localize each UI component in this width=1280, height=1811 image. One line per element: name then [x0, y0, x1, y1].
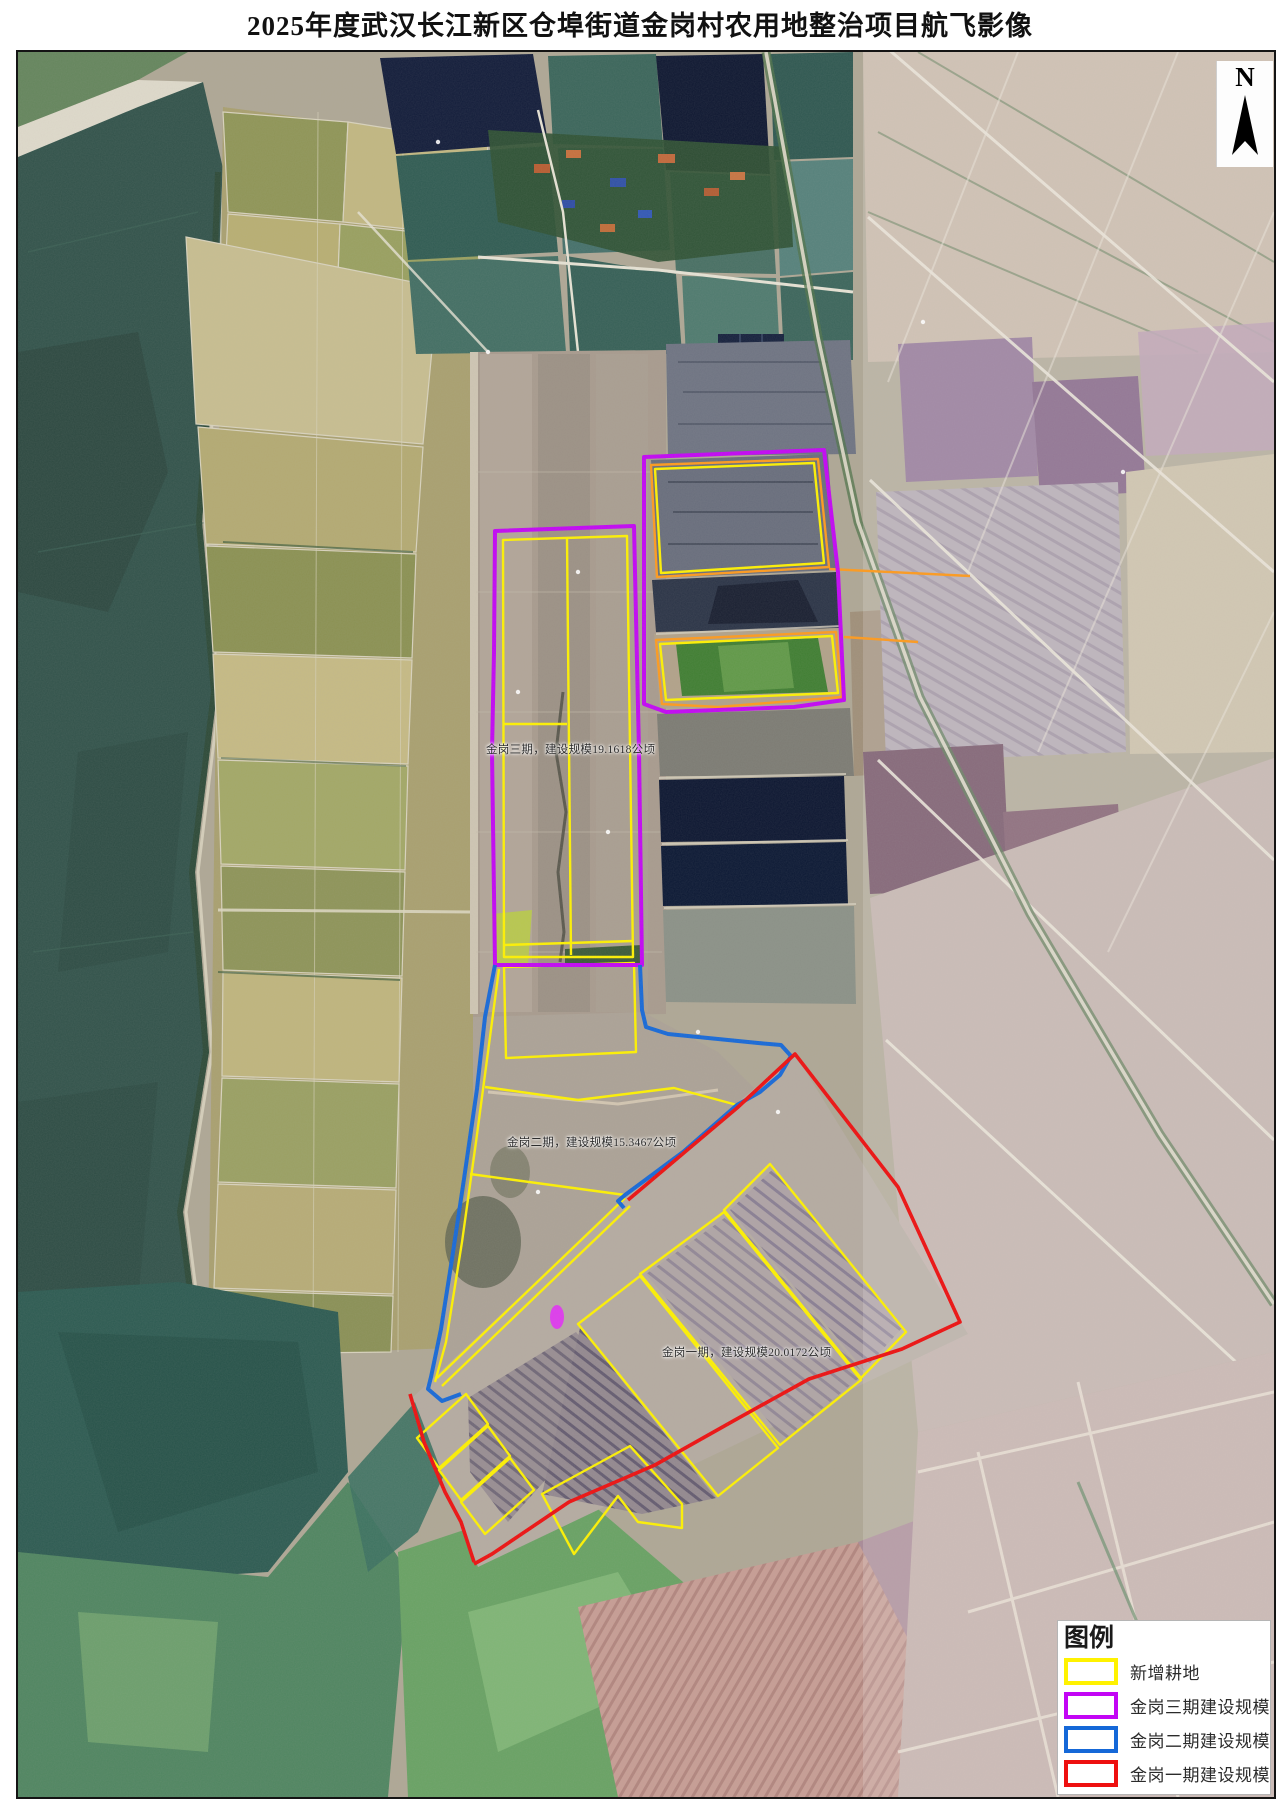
north-arrow-icon: [1225, 93, 1265, 159]
phase2-area-label: 金岗二期，建设规模15.3467公顷: [507, 1134, 676, 1150]
legend-item: 新增耕地: [1064, 1654, 1270, 1688]
legend-item: 金岗一期建设规模: [1064, 1756, 1270, 1790]
legend-item: 金岗二期建设规模: [1064, 1722, 1270, 1756]
north-arrow: N: [1216, 61, 1273, 167]
legend-item-label: 金岗一期建设规模: [1130, 1761, 1270, 1786]
legend-item: 金岗三期建设规模: [1064, 1688, 1270, 1722]
phase1-swatch: [1064, 1760, 1118, 1787]
legend-item-label: 新增耕地: [1130, 1659, 1200, 1684]
phase1-area-label: 金岗一期，建设规模20.0172公顷: [662, 1344, 831, 1360]
north-label: N: [1235, 64, 1255, 91]
aerial-map-sheet: 2025年度武汉长江新区仓埠街道金岗村农用地整治项目航飞影像: [0, 0, 1280, 1811]
phase3-swatch: [1064, 1692, 1118, 1719]
aerial-imagery: [18, 52, 1274, 1797]
new-farmland-swatch: [1064, 1658, 1118, 1685]
legend-item-label: 金岗三期建设规模: [1130, 1693, 1270, 1718]
legend-panel: 图例 新增耕地 金岗三期建设规模 金岗二期建设规模 金岗一期建设规模: [1057, 1620, 1271, 1795]
legend-title: 图例: [1064, 1623, 1270, 1654]
phase3-area-label: 金岗三期，建设规模19.1618公顷: [486, 741, 655, 757]
map-canvas: [16, 50, 1276, 1799]
phase2-swatch: [1064, 1726, 1118, 1753]
legend-item-label: 金岗二期建设规模: [1130, 1727, 1270, 1752]
page-title: 2025年度武汉长江新区仓埠街道金岗村农用地整治项目航飞影像: [0, 4, 1280, 43]
